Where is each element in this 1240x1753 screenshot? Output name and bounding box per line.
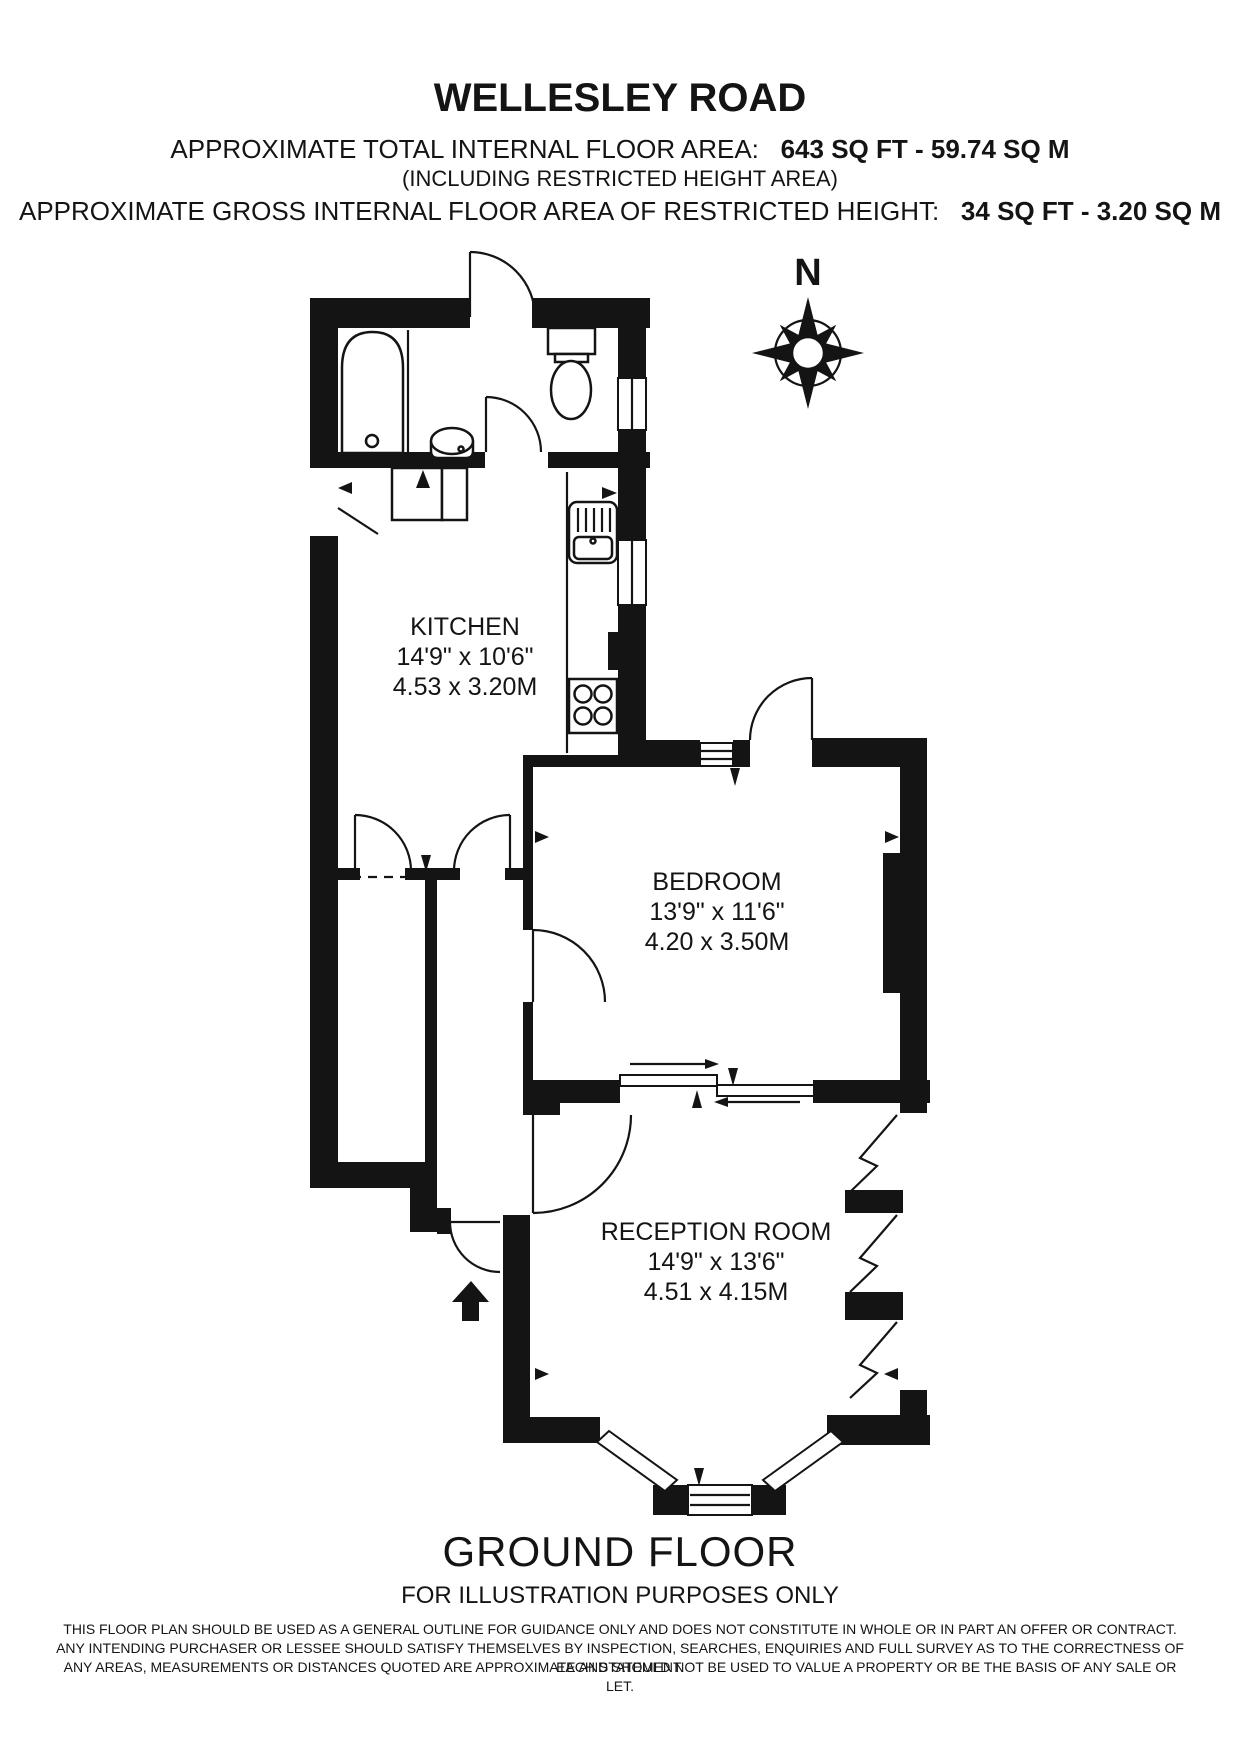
- compass-north-label: N: [786, 252, 830, 295]
- disclaimer-line-3: ANY AREAS, MEASUREMENTS OR DISTANCES QUO…: [50, 1658, 1190, 1695]
- reception-dimensions-metric: 4.51 x 4.15M: [556, 1277, 876, 1307]
- toilet-icon: [548, 328, 595, 419]
- reception-label: RECEPTION ROOM 14'9" x 13'6" 4.51 x 4.15…: [556, 1217, 876, 1307]
- bedroom-name: BEDROOM: [557, 867, 877, 897]
- bedroom-label: BEDROOM 13'9" x 11'6" 4.20 x 3.50M: [557, 867, 877, 957]
- reception-door: [533, 1115, 631, 1213]
- floor-subtitle: FOR ILLUSTRATION PURPOSES ONLY: [0, 1582, 1240, 1610]
- kitchen-dimensions-imperial: 14'9" x 10'6": [305, 642, 625, 672]
- reception-name: RECEPTION ROOM: [556, 1217, 876, 1247]
- floorplan-page: WELLESLEY ROAD APPROXIMATE TOTAL INTERNA…: [0, 0, 1240, 1753]
- kitchen-dimensions-metric: 4.53 x 3.20M: [305, 672, 625, 702]
- bathroom-door: [486, 397, 541, 452]
- disclaimer-line-1: THIS FLOOR PLAN SHOULD BE USED AS A GENE…: [50, 1620, 1190, 1639]
- storage-cupboards: [392, 468, 467, 520]
- side-door: [338, 508, 378, 534]
- top-entrance-door: [470, 252, 535, 317]
- bathtub-icon: [342, 330, 408, 453]
- kitchen-sink-icon: [569, 502, 617, 563]
- sliding-doors: [620, 1059, 814, 1108]
- bedroom-threshold: [700, 743, 733, 766]
- kitchen-hall-door-left: [355, 815, 411, 871]
- bedroom-dimensions-imperial: 13'9" x 11'6": [557, 897, 877, 927]
- compass-rose-icon: [752, 297, 864, 409]
- kitchen-window: [618, 540, 646, 605]
- entrance-arrow: [452, 1281, 489, 1321]
- floor-title: GROUND FLOOR: [0, 1528, 1240, 1576]
- kitchen-hall-door-right: [454, 815, 510, 871]
- bay-window: [597, 1431, 843, 1515]
- kitchen-name: KITCHEN: [305, 612, 625, 642]
- kitchen-label: KITCHEN 14'9" x 10'6" 4.53 x 3.20M: [305, 612, 625, 702]
- bedroom-garden-door: [750, 678, 812, 740]
- bedroom-dimensions-metric: 4.20 x 3.50M: [557, 927, 877, 957]
- basin-icon: [431, 428, 473, 458]
- reception-dimensions-imperial: 14'9" x 13'6": [556, 1247, 876, 1277]
- front-door: [450, 1222, 500, 1272]
- wc-window: [618, 378, 646, 430]
